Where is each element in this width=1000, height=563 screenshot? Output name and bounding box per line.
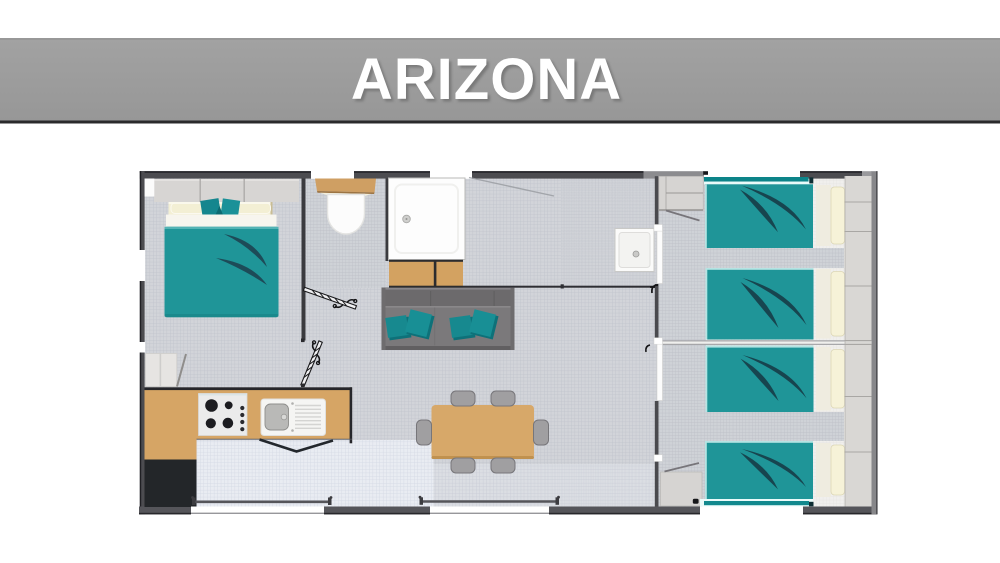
svg-text:ARIZONA: ARIZONA (351, 47, 622, 112)
